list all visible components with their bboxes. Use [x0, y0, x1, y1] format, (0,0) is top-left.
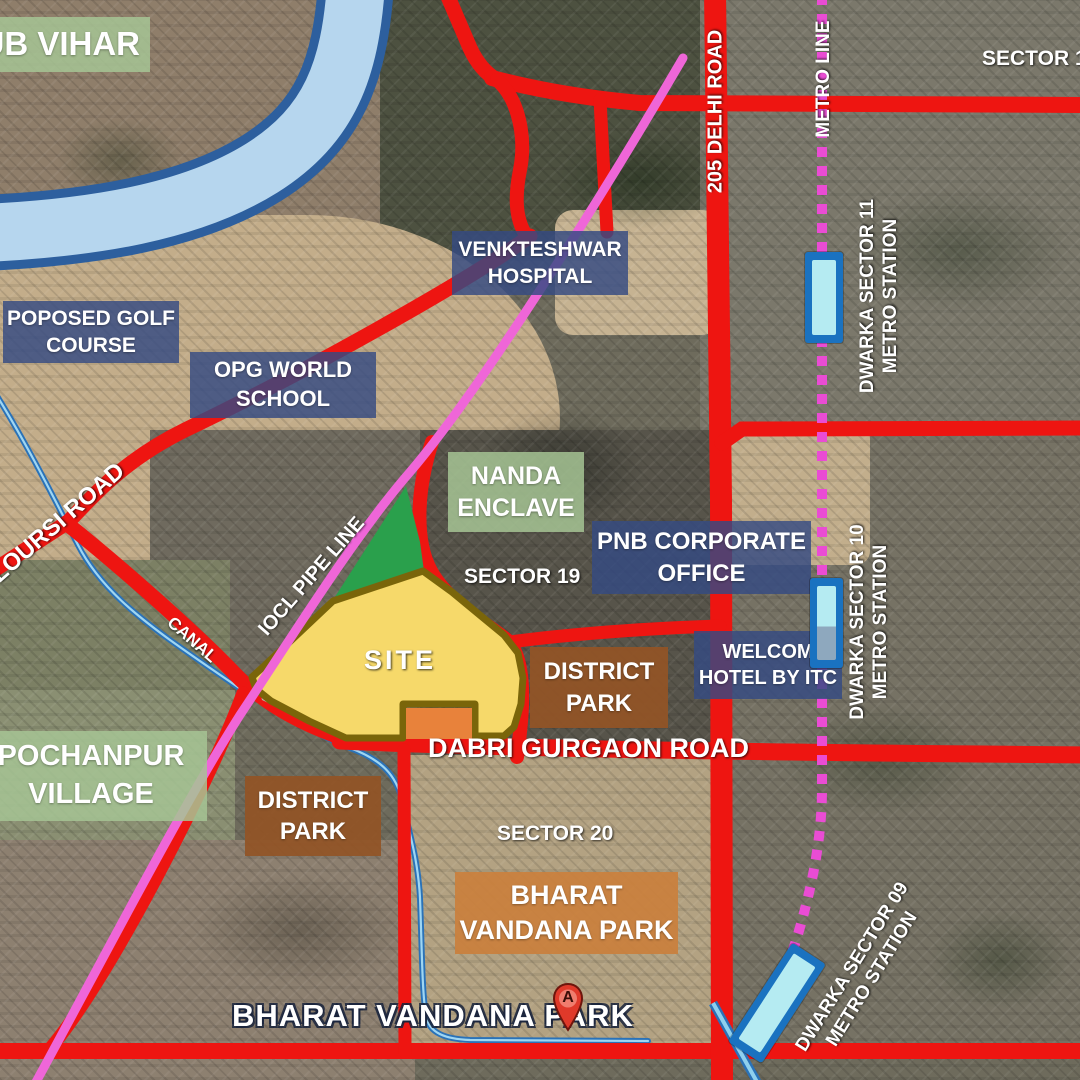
- station-line: METRO STATION: [869, 502, 892, 742]
- map-pin-icon: A: [551, 983, 585, 1038]
- label-ub-vihar: UB VIHAR: [0, 17, 150, 72]
- station-line: DWARKA SECTOR 11: [856, 176, 879, 416]
- label-205-delhi-road: 205 DELHI ROAD: [705, 17, 728, 207]
- station-line: DWARKA SECTOR 10: [846, 502, 869, 742]
- label-station-sector-11: DWARKA SECTOR 11 METRO STATION: [856, 176, 902, 416]
- label-line: POCHANPUR: [0, 738, 207, 776]
- label-sector-20: SECTOR 20: [497, 822, 613, 846]
- label-line: PARK: [245, 816, 381, 847]
- label-line: VILLAGE: [0, 776, 207, 814]
- road-vertical-branch: [600, 100, 607, 232]
- pin-letter: A: [551, 989, 585, 1007]
- label-line: COURSE: [3, 332, 179, 359]
- road-right-horizontal: [722, 428, 1080, 443]
- label-opg-school: OPG WORLD SCHOOL: [190, 352, 376, 418]
- metro-station-marker-sector-11: [805, 252, 843, 343]
- label-district-park-west: DISTRICT PARK: [245, 776, 381, 856]
- road-north-branch: [446, 0, 497, 80]
- label-line: POPOSED GOLF: [3, 305, 179, 332]
- label-pnb-office: PNB CORPORATE OFFICE: [592, 521, 811, 594]
- label-line: OPG WORLD: [190, 356, 376, 385]
- label-line: OFFICE: [592, 558, 811, 589]
- label-metro-line: METRO LINE: [813, 4, 835, 154]
- label-line: DISTRICT: [245, 785, 381, 816]
- label-sector-11: SECTOR 11: [982, 47, 1080, 71]
- station-platform: [817, 586, 836, 660]
- label-line: VANDANA PARK: [455, 913, 678, 948]
- metro-station-marker-sector-10: [810, 578, 843, 668]
- label-line: SCHOOL: [190, 385, 376, 414]
- label-pochanpur-village: POCHANPUR VILLAGE: [0, 731, 207, 821]
- road-top-horizontal: [492, 78, 1080, 105]
- road-s-curve: [497, 80, 528, 238]
- label-line: PNB CORPORATE: [592, 526, 811, 557]
- label-district-park-east: DISTRICT PARK: [530, 647, 668, 728]
- label-sector-19: SECTOR 19: [464, 565, 580, 589]
- label-line: NANDA: [448, 460, 584, 493]
- station-platform: [812, 260, 836, 335]
- label-site: SITE: [340, 645, 460, 676]
- label-line: VENKTESHWAR: [452, 236, 628, 263]
- label-line: HOTEL BY ITC: [694, 665, 842, 691]
- label-line: PARK: [530, 688, 668, 719]
- label-nanda-enclave: NANDA ENCLAVE: [448, 452, 584, 532]
- label-bharat-vandana-park: BHARAT VANDANA PARK: [455, 872, 678, 954]
- station-line: METRO STATION: [879, 176, 902, 416]
- label-line: ENCLAVE: [448, 492, 584, 525]
- site-location-map: UB VIHAR POPOSED GOLF COURSE OPG WORLD S…: [0, 0, 1080, 1080]
- label-text: UB VIHAR: [0, 23, 140, 66]
- label-line: BHARAT: [455, 878, 678, 913]
- label-line: HOSPITAL: [452, 263, 628, 290]
- label-golf-course: POPOSED GOLF COURSE: [3, 301, 179, 363]
- road-east-spur: [510, 626, 720, 642]
- label-line: DISTRICT: [530, 656, 668, 687]
- label-station-sector-10: DWARKA SECTOR 10 METRO STATION: [846, 502, 892, 742]
- label-dabri-gurgaon-road: DABRI GURGAON ROAD: [428, 733, 749, 764]
- label-venkteshwar-hospital: VENKTESHWAR HOSPITAL: [452, 231, 628, 295]
